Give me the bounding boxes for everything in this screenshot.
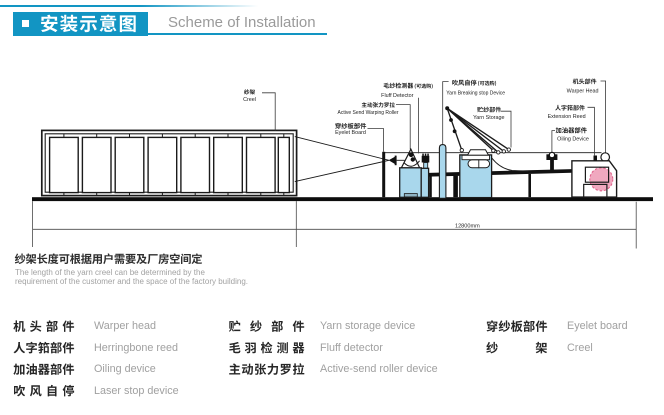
- svg-text:Warper Head: Warper Head: [567, 89, 599, 95]
- svg-text:Oiling Device: Oiling Device: [557, 137, 589, 143]
- svg-text:Yarn Breaking stop Device: Yarn Breaking stop Device: [446, 90, 505, 96]
- svg-text:Active Send Warping Roller: Active Send Warping Roller: [338, 110, 399, 116]
- svg-text:Creel: Creel: [243, 97, 256, 103]
- svg-text:Eyelet Board: Eyelet Board: [335, 130, 366, 136]
- svg-text:Extension Reed: Extension Reed: [548, 114, 586, 120]
- svg-text:Fluff Detector: Fluff Detector: [381, 93, 413, 99]
- svg-text:12800mm: 12800mm: [455, 224, 480, 230]
- svg-text:Yarn Storage: Yarn Storage: [473, 115, 504, 121]
